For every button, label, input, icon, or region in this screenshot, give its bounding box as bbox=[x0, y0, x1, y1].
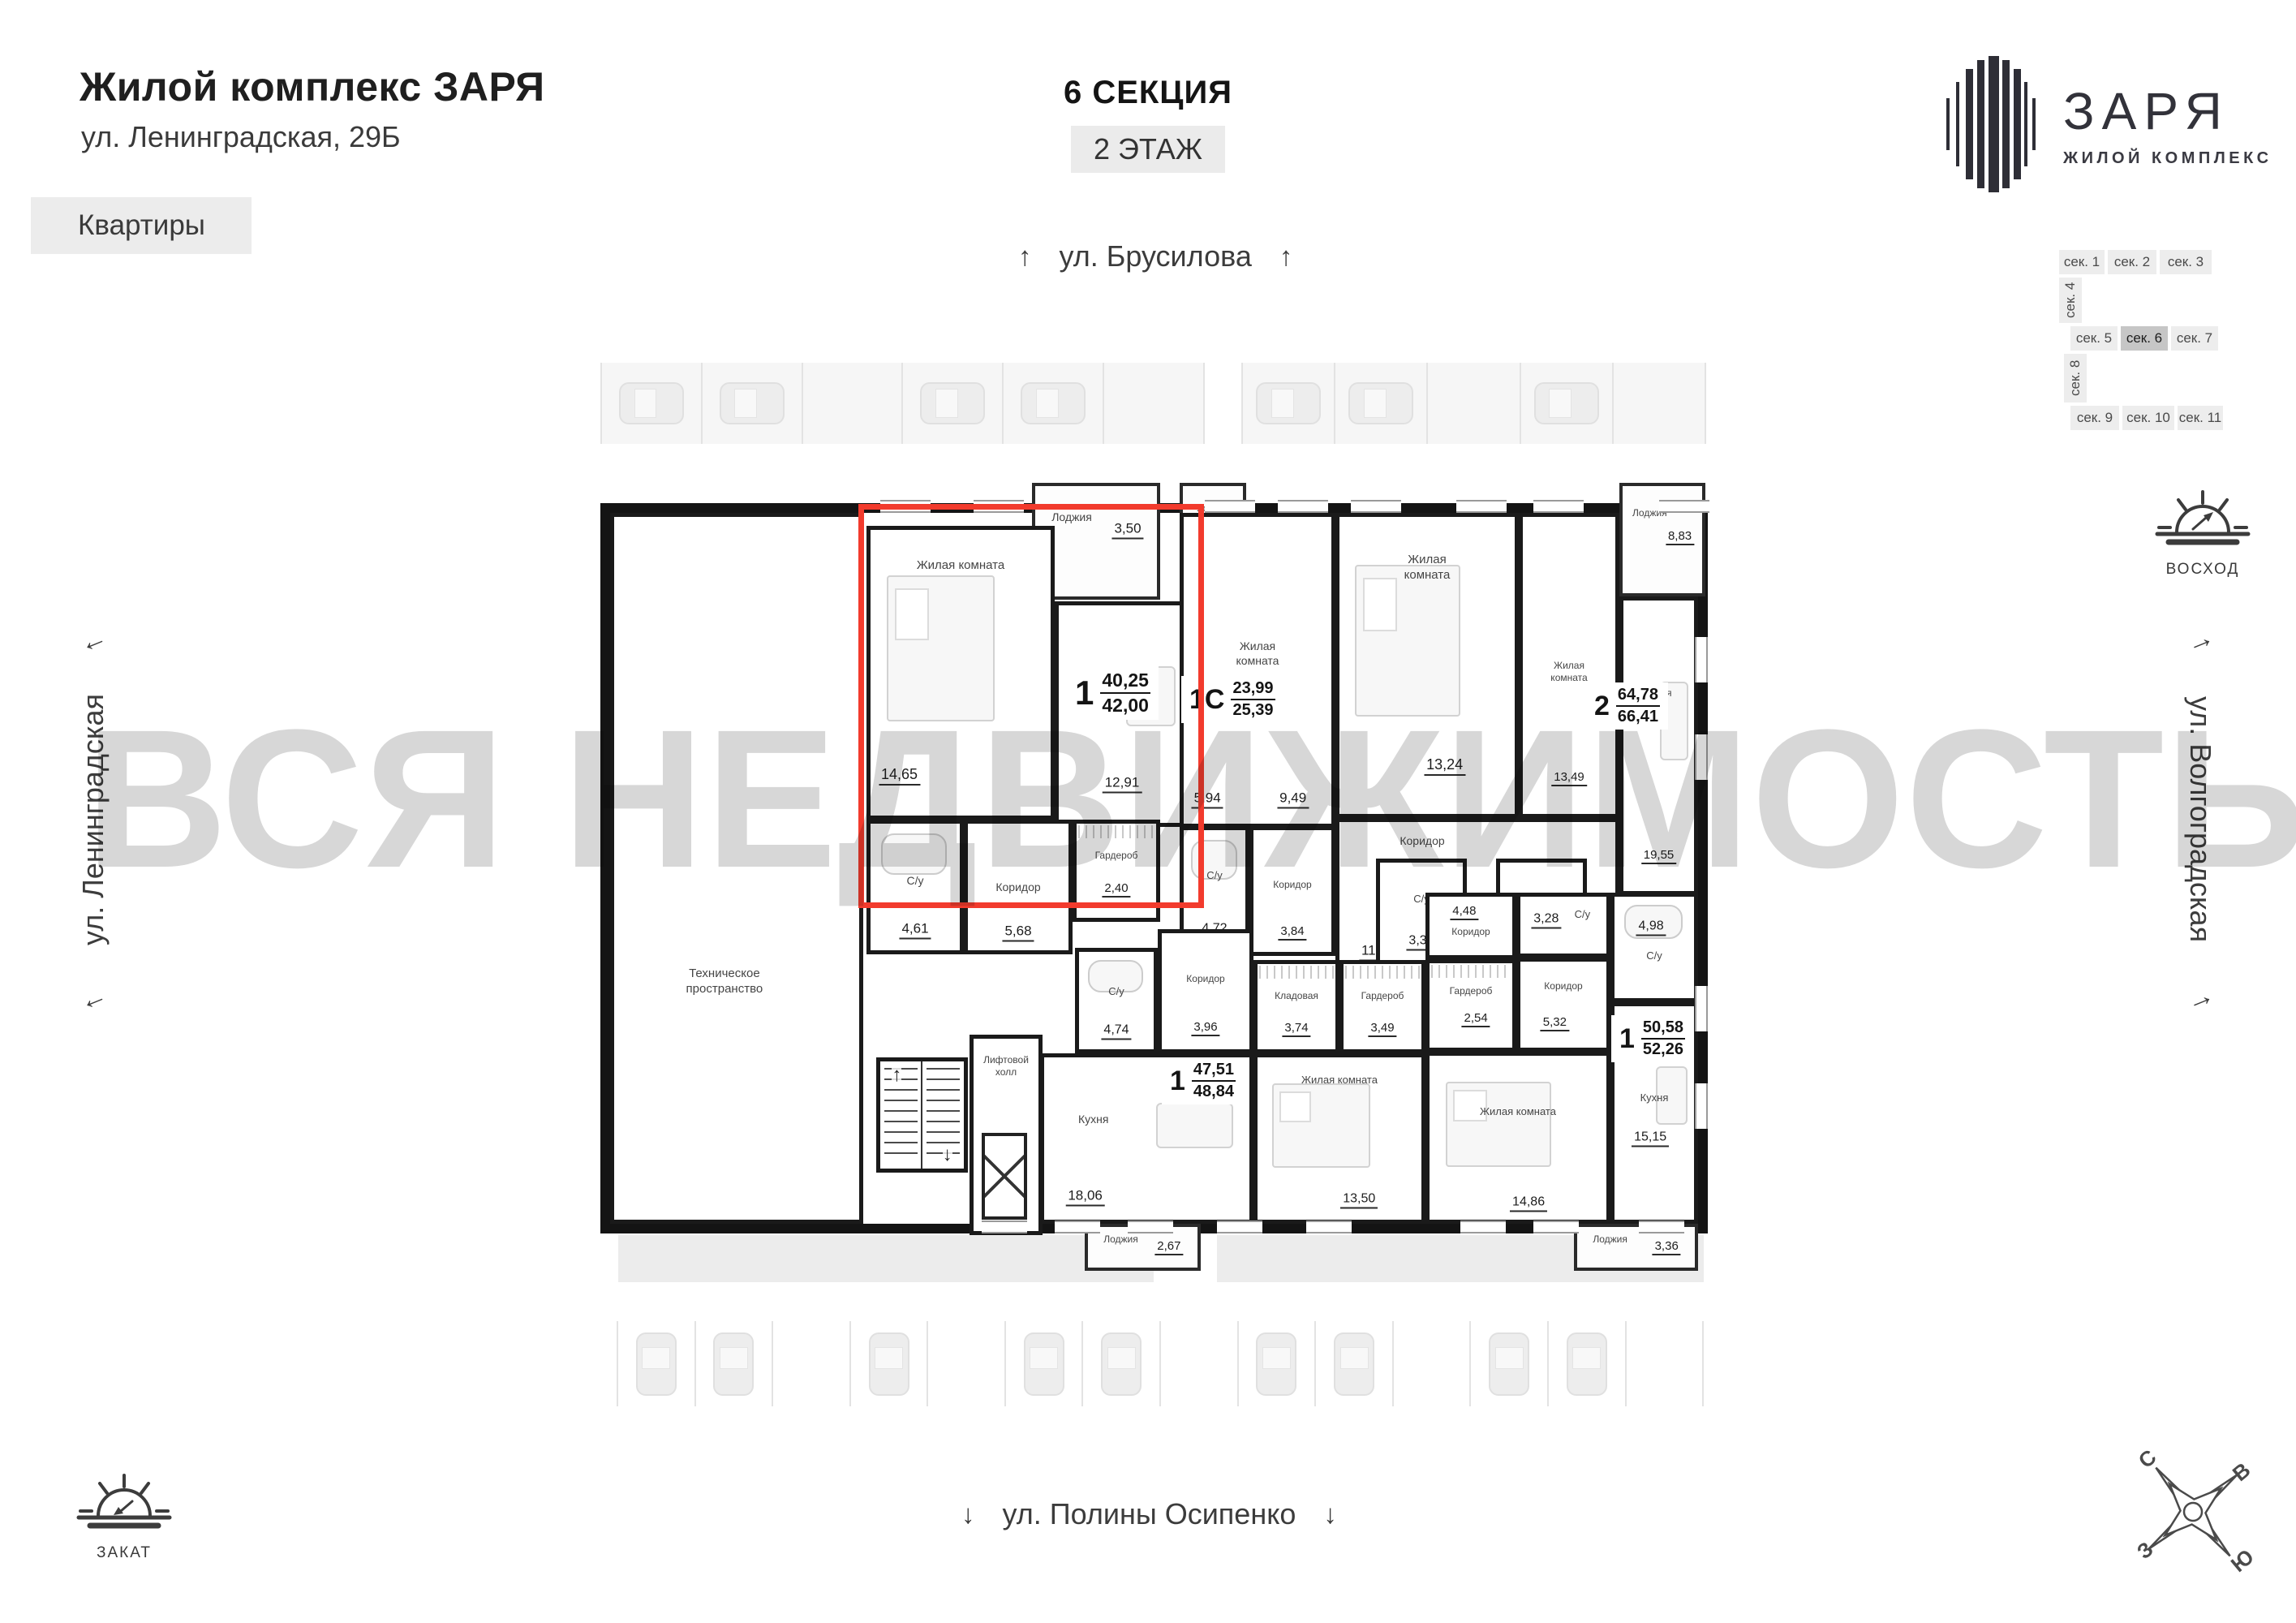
apt4-bath-2-label: С/у bbox=[1646, 949, 1662, 962]
unit-total-area: 25,39 bbox=[1232, 700, 1273, 720]
car-icon bbox=[619, 382, 684, 424]
right-arrow-icon: → bbox=[2182, 979, 2219, 1018]
car-icon bbox=[1348, 382, 1413, 424]
apt3-corridor-area: 3,96 bbox=[1191, 1020, 1219, 1036]
apt4-corridor-2-area: 5,32 bbox=[1541, 1015, 1569, 1031]
unit-label-3[interactable]: 264,7866,41 bbox=[1586, 682, 1668, 730]
apt1c-main-area: 9,49 bbox=[1277, 790, 1309, 808]
parking-stall bbox=[851, 1321, 929, 1406]
apt2-kitchen: Кухня19,55 bbox=[1619, 596, 1698, 895]
section-map-cell[interactable]: сек. 2 bbox=[2108, 250, 2156, 274]
parking-stall bbox=[1627, 1321, 1705, 1406]
car-icon bbox=[1489, 1332, 1529, 1396]
apt1-bath-area: 4,61 bbox=[899, 921, 931, 940]
tech-space: Техническое пространство bbox=[610, 513, 863, 1224]
section-map-cell[interactable]: сек. 1 bbox=[2059, 250, 2105, 274]
apt4-bath-1: С/у3,28 bbox=[1516, 893, 1610, 958]
selected-apartment-highlight[interactable] bbox=[858, 504, 1204, 908]
parking-stall bbox=[1614, 363, 1706, 444]
section-map-cell[interactable]: сек. 10 bbox=[2122, 406, 2174, 430]
unit-areas: 23,9925,39 bbox=[1231, 679, 1275, 720]
apt1c-main-label: Жилая комната bbox=[1236, 639, 1279, 668]
logo-subtitle: ЖИЛОЙ КОМПЛЕКС bbox=[2063, 149, 2272, 168]
apt4-corridor-2: Коридор5,32 bbox=[1516, 958, 1610, 1052]
apt2-loggia-area: 8,83 bbox=[1666, 529, 1694, 545]
parking-stall bbox=[1335, 363, 1428, 444]
car-icon bbox=[1567, 1332, 1607, 1396]
apt4-kitchen-label: Кухня bbox=[1640, 1091, 1669, 1104]
lift-hall: Лифтовой холл bbox=[970, 1035, 1043, 1235]
parking-stall bbox=[696, 1321, 774, 1406]
apt4-bath-2-area: 4,98 bbox=[1636, 919, 1666, 936]
sunrise-icon bbox=[2153, 487, 2252, 552]
apt4-corridor-1-label: Коридор bbox=[1451, 926, 1490, 938]
window-icon bbox=[1278, 500, 1328, 513]
apt3-living-label: Жилая комната bbox=[1301, 1074, 1378, 1087]
parking-stall bbox=[1394, 1321, 1472, 1406]
stairs-up-arrow-icon: ↑ bbox=[892, 1065, 901, 1085]
window-icon bbox=[1351, 500, 1401, 513]
car-icon bbox=[1256, 1332, 1296, 1396]
sunset-icon bbox=[75, 1470, 174, 1535]
window-icon bbox=[1695, 734, 1708, 780]
apt2-corridor-label: Коридор bbox=[1400, 834, 1444, 849]
car-icon bbox=[636, 1332, 677, 1396]
apt4-bath-1-area: 3,28 bbox=[1531, 912, 1561, 929]
parking-stall bbox=[600, 363, 703, 444]
unit-living-area: 47,51 bbox=[1192, 1061, 1236, 1082]
unit-label-4[interactable]: 147,5148,84 bbox=[1162, 1057, 1244, 1104]
left-arrow-icon: ← bbox=[75, 979, 112, 1018]
compass-south: Ю bbox=[2226, 1544, 2259, 1577]
car-icon bbox=[1334, 1332, 1374, 1396]
window-icon bbox=[1456, 500, 1507, 513]
apt4-living-area: 14,86 bbox=[1510, 1195, 1547, 1212]
unit-type: 2 bbox=[1594, 691, 1610, 722]
car-icon bbox=[713, 1332, 754, 1396]
staircase: ↑↓ bbox=[876, 1057, 968, 1173]
street-left: ← ул. Ленинградская ← bbox=[45, 625, 142, 1014]
apt1-corridor-area: 5,68 bbox=[1002, 923, 1034, 942]
window-icon bbox=[1055, 1220, 1100, 1233]
bed-icon bbox=[1355, 565, 1460, 717]
page-title: Жилой комплекс ЗАРЯ bbox=[80, 63, 545, 110]
street-right: → ул. Волгоградская → bbox=[2152, 625, 2249, 1014]
apt3-bath: С/у4,74 bbox=[1075, 948, 1158, 1053]
left-arrow-icon: ← bbox=[75, 621, 112, 661]
window-icon bbox=[1460, 1220, 1506, 1233]
down-arrow-icon: ↓ bbox=[1323, 1499, 1337, 1530]
apt1c-bath-label: С/у bbox=[1206, 869, 1223, 882]
apt3-kitchen-label: Кухня bbox=[1078, 1113, 1108, 1127]
unit-label-5[interactable]: 150,5852,26 bbox=[1611, 1015, 1693, 1062]
section-map-cell[interactable]: сек. 7 bbox=[2171, 326, 2218, 351]
parking-strip bbox=[617, 1321, 1704, 1406]
apt3-storage: Кладовая3,74 bbox=[1253, 960, 1339, 1053]
parking-stall bbox=[1104, 363, 1205, 444]
stairs-down-arrow-icon: ↓ bbox=[943, 1145, 952, 1165]
window-icon bbox=[1217, 1220, 1262, 1233]
car-icon bbox=[720, 382, 785, 424]
window-icon bbox=[1639, 1220, 1684, 1233]
parking-stall bbox=[1006, 1321, 1084, 1406]
unit-type: 1 bbox=[1170, 1065, 1185, 1097]
apt3-bath-label: С/у bbox=[1108, 985, 1124, 998]
floor-plan: Техническое пространствоЖилая комната14,… bbox=[600, 467, 1708, 1278]
window-icon bbox=[982, 1220, 1027, 1233]
car-icon bbox=[1021, 382, 1086, 424]
parking-stall bbox=[1004, 363, 1104, 444]
window-icon bbox=[1533, 1220, 1579, 1233]
car-icon bbox=[1024, 1332, 1064, 1396]
apt3-loggia-label: Лоджия bbox=[1103, 1233, 1138, 1246]
street-top: ↑ ул. Брусилова ↑ bbox=[1018, 239, 1292, 273]
apt4-corridor-1-area: 4,48 bbox=[1450, 904, 1478, 920]
parking-strip bbox=[1241, 363, 1706, 444]
floor-badge[interactable]: 2 ЭТАЖ bbox=[1071, 126, 1225, 173]
apt2-kitchen-area: 19,55 bbox=[1641, 848, 1677, 864]
apt3-wardrobe: Гардероб3,49 bbox=[1339, 960, 1425, 1053]
car-icon bbox=[869, 1332, 909, 1396]
section-map-cell[interactable]: сек. 3 bbox=[2160, 250, 2212, 274]
apt2-living-1: Жилая комната13,24 bbox=[1335, 513, 1519, 818]
lift-hall-label: Лифтовой холл bbox=[983, 1054, 1029, 1078]
parking-stall bbox=[1549, 1321, 1627, 1406]
apt4-living-label: Жилая комната bbox=[1480, 1105, 1556, 1118]
car-icon bbox=[920, 382, 985, 424]
section-map-cell[interactable]: сек. 8 bbox=[2064, 354, 2087, 403]
apt1c-corridor: Коридор3,84 bbox=[1249, 826, 1335, 956]
section-map-cell[interactable]: сек. 11 bbox=[2178, 406, 2223, 430]
down-arrow-icon: ↓ bbox=[961, 1499, 975, 1530]
bed-icon bbox=[1446, 1082, 1551, 1167]
window-icon bbox=[1205, 500, 1255, 513]
logo-name: ЗАРЯ bbox=[2063, 81, 2272, 141]
apt4-bath-1-label: С/у bbox=[1575, 908, 1591, 921]
logo-icon bbox=[1943, 55, 2040, 193]
compass-west: З bbox=[2132, 1537, 2158, 1564]
window-icon bbox=[1659, 500, 1709, 513]
car-icon bbox=[1256, 382, 1321, 424]
unit-total-area: 48,84 bbox=[1193, 1082, 1234, 1101]
apt4-bath-2: С/у4,98 bbox=[1610, 893, 1698, 1002]
parking-stall bbox=[703, 363, 803, 444]
window-icon bbox=[1533, 500, 1584, 513]
apt1c-corridor-label: Коридор bbox=[1273, 879, 1311, 891]
apt4-wardrobe-area: 2,54 bbox=[1462, 1011, 1490, 1027]
apt3-kitchen-area: 18,06 bbox=[1065, 1188, 1105, 1207]
section-map-cell[interactable]: сек. 6 bbox=[2121, 326, 2168, 351]
apt2-living-2-label: Жилая комната bbox=[1550, 660, 1587, 684]
apt1c-corridor-area: 3,84 bbox=[1278, 924, 1306, 941]
unit-total-area: 66,41 bbox=[1618, 707, 1658, 726]
parking-stall bbox=[1239, 1321, 1317, 1406]
bed-icon bbox=[1272, 1083, 1370, 1168]
parking-stall bbox=[803, 363, 904, 444]
section-map-cell[interactable]: сек. 5 bbox=[2070, 326, 2118, 351]
apt4-wardrobe-label: Гардероб bbox=[1450, 985, 1493, 997]
car-icon bbox=[1101, 1332, 1142, 1396]
up-arrow-icon: ↑ bbox=[1018, 241, 1032, 272]
apt2-living-2-area: 13,49 bbox=[1551, 770, 1587, 786]
tech-space-label: Техническое пространство bbox=[657, 966, 792, 997]
apt3-bath-area: 4,74 bbox=[1101, 1023, 1131, 1040]
unit-living-area: 50,58 bbox=[1641, 1018, 1685, 1040]
apt4-loggia-label: Лоджия bbox=[1593, 1233, 1627, 1246]
window-icon bbox=[1128, 1220, 1173, 1233]
window-icon bbox=[1695, 1083, 1708, 1129]
street-bottom: ↓ ул. Полины Осипенко ↓ bbox=[961, 1497, 1337, 1531]
apt3-wardrobe-area: 3,49 bbox=[1368, 1021, 1396, 1037]
parking-stall bbox=[928, 1321, 1006, 1406]
floor-header: 6 СЕКЦИЯ 2 ЭТАЖ bbox=[998, 75, 1298, 173]
car-icon bbox=[1534, 382, 1599, 424]
unit-areas: 64,7866,41 bbox=[1616, 686, 1660, 726]
tab-apartments[interactable]: Квартиры bbox=[31, 197, 252, 254]
apt3-corridor: Коридор3,96 bbox=[1158, 929, 1253, 1053]
parking-stall bbox=[617, 1321, 696, 1406]
parking-stall bbox=[903, 363, 1004, 444]
apt4-loggia-area: 3,36 bbox=[1653, 1239, 1681, 1255]
parking-stall bbox=[773, 1321, 851, 1406]
apt3-living-area: 13,50 bbox=[1340, 1192, 1378, 1209]
apt3-living: Жилая комната13,50 bbox=[1253, 1053, 1425, 1224]
parking-stall bbox=[1428, 363, 1520, 444]
parking-stall bbox=[1521, 363, 1614, 444]
apt3-storage-area: 3,74 bbox=[1282, 1021, 1310, 1037]
apt4-corridor-1: Коридор4,48 bbox=[1425, 893, 1516, 959]
unit-areas: 50,5852,26 bbox=[1641, 1018, 1685, 1059]
section-title: 6 СЕКЦИЯ bbox=[998, 75, 1298, 111]
unit-total-area: 52,26 bbox=[1643, 1040, 1683, 1059]
elevator-shaft bbox=[982, 1133, 1027, 1220]
window-icon bbox=[1695, 637, 1708, 682]
apt4-corridor-2-label: Коридор bbox=[1544, 980, 1582, 992]
window-icon bbox=[1695, 986, 1708, 1031]
parking-stall bbox=[1083, 1321, 1161, 1406]
sunrise-label: ВОСХОД bbox=[2150, 561, 2255, 579]
up-arrow-icon: ↑ bbox=[1279, 241, 1293, 272]
sunset-label: ЗАКАТ bbox=[71, 1544, 177, 1562]
parking-stall bbox=[1241, 363, 1335, 444]
table-icon bbox=[1156, 1103, 1233, 1148]
parking-stall bbox=[1161, 1321, 1239, 1406]
apt3-storage-label: Кладовая bbox=[1275, 990, 1318, 1002]
compass-rose: С В З Ю bbox=[2124, 1443, 2262, 1585]
parking-stall bbox=[1471, 1321, 1549, 1406]
apt4-living: Жилая комната14,86 bbox=[1425, 1052, 1610, 1224]
apt3-corridor-label: Коридор bbox=[1186, 973, 1224, 985]
section-map-cell[interactable]: сек. 9 bbox=[2070, 406, 2119, 430]
sunrise-block: ВОСХОД bbox=[2150, 487, 2255, 579]
parking-stall bbox=[1316, 1321, 1394, 1406]
apt3-loggia-area: 2,67 bbox=[1154, 1239, 1183, 1255]
apt3-wardrobe-label: Гардероб bbox=[1361, 990, 1404, 1002]
logo: ЗАРЯ ЖИЛОЙ КОМПЛЕКС bbox=[1943, 55, 2272, 193]
address: ул. Ленинградская, 29Б bbox=[81, 120, 401, 154]
unit-type: 1 bbox=[1619, 1023, 1635, 1055]
apt2-living-1-label: Жилая комната bbox=[1383, 553, 1471, 583]
section-map: сек. 1сек. 2сек. 3сек. 5сек. 6сек. 7сек.… bbox=[2057, 248, 2228, 435]
right-arrow-icon: → bbox=[2182, 621, 2219, 661]
apt4-wardrobe: Гардероб2,54 bbox=[1425, 959, 1516, 1052]
apt2-living-2: Жилая комната13,49 bbox=[1519, 513, 1619, 818]
section-map-cell[interactable]: сек. 4 bbox=[2059, 278, 2082, 323]
window-icon bbox=[1306, 1220, 1352, 1233]
unit-living-area: 64,78 bbox=[1616, 686, 1660, 707]
parking-strip bbox=[600, 363, 1205, 444]
unit-areas: 47,5148,84 bbox=[1192, 1061, 1236, 1101]
apt2-living-1-area: 13,24 bbox=[1424, 756, 1465, 776]
sunset-block: ЗАКАТ bbox=[71, 1470, 177, 1562]
unit-living-area: 23,99 bbox=[1231, 679, 1275, 700]
apt4-kitchen-area: 15,15 bbox=[1632, 1130, 1669, 1147]
